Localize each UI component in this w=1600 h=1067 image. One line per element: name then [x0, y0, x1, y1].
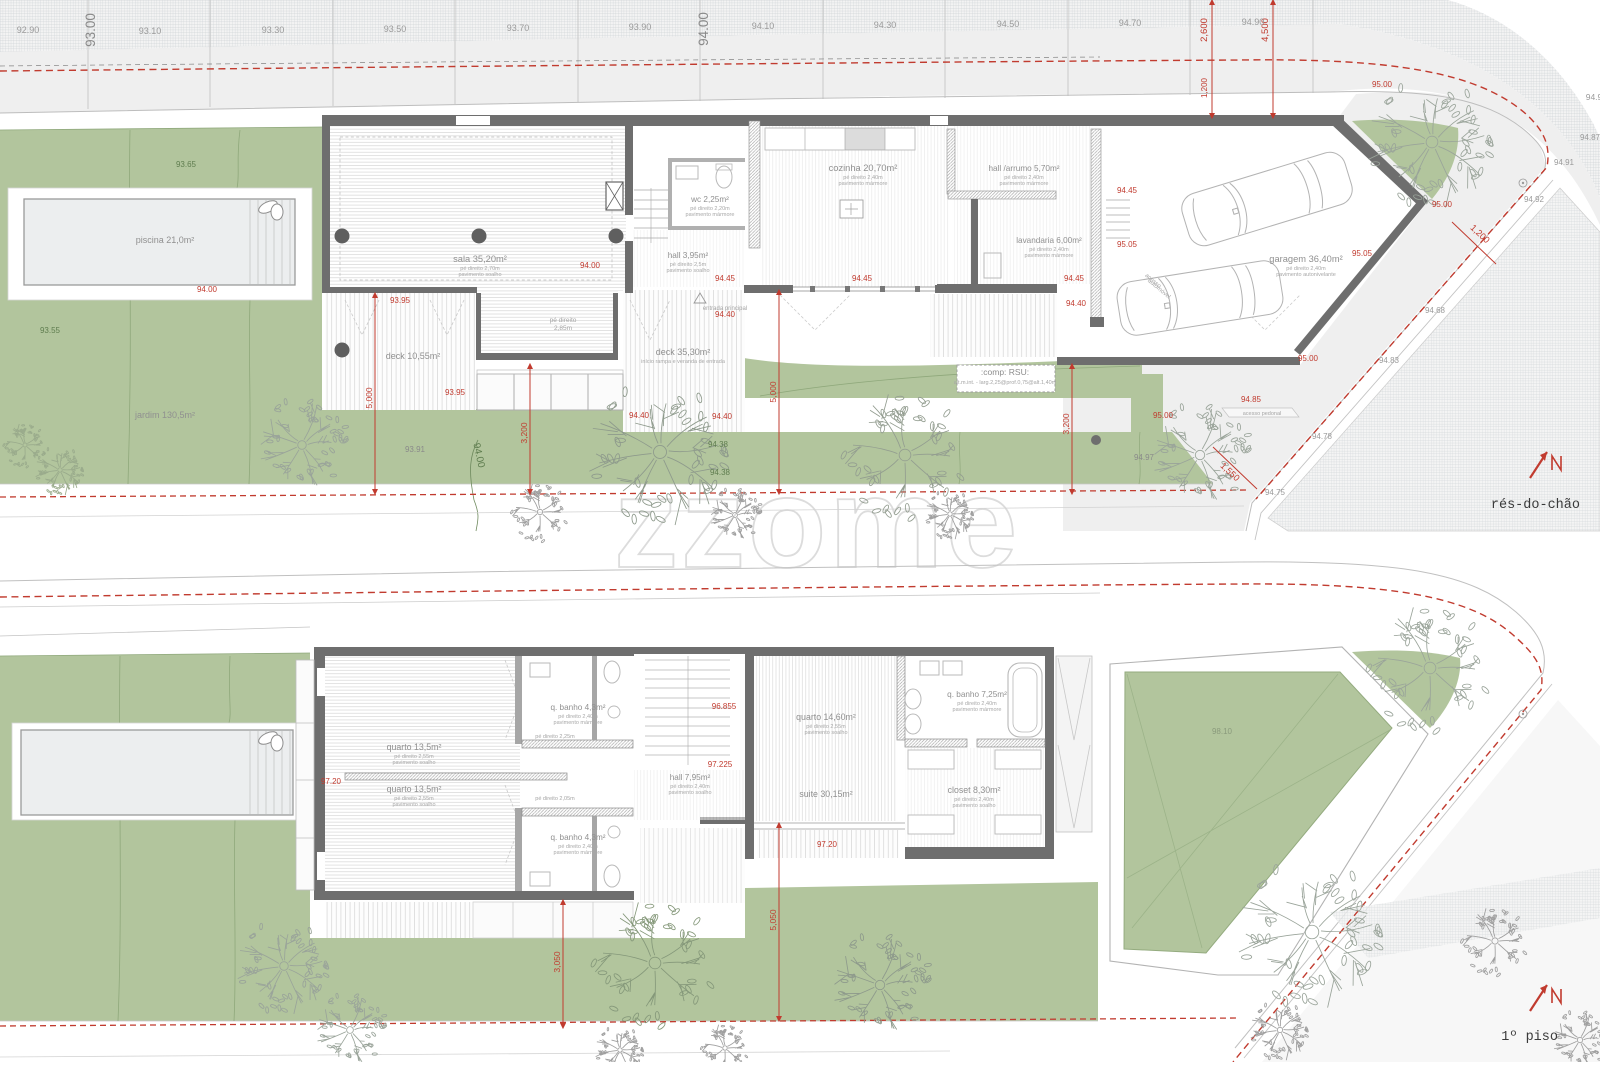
svg-text:pavimento mármore: pavimento mármore [554, 720, 603, 726]
svg-text:pavimento soalho: pavimento soalho [458, 272, 501, 278]
svg-text:pé direito 2,05m: pé direito 2,05m [535, 796, 575, 802]
svg-text:pé direito: pé direito [550, 317, 577, 324]
svg-text:93.90: 93.90 [629, 22, 652, 32]
svg-text:alt.m.int. - larg.2,25@prof.0,: alt.m.int. - larg.2,25@prof.0,75@alt.1,4… [954, 380, 1057, 386]
svg-text:94.00: 94.00 [197, 285, 218, 294]
svg-text:3,050: 3,050 [552, 951, 562, 973]
svg-text:94.91: 94.91 [1554, 158, 1575, 167]
svg-text:pavimento soalho: pavimento soalho [804, 730, 847, 736]
svg-text:93.70: 93.70 [507, 23, 530, 33]
svg-text:3,200: 3,200 [1061, 413, 1071, 435]
svg-text:93.50: 93.50 [384, 24, 407, 34]
svg-text:93.95: 93.95 [445, 388, 466, 397]
svg-text:5,000: 5,000 [364, 387, 374, 409]
svg-text:94.30: 94.30 [874, 20, 897, 30]
svg-text:94.97: 94.97 [1134, 453, 1155, 462]
svg-text:94.70: 94.70 [1119, 18, 1142, 28]
svg-text:95.05: 95.05 [1117, 240, 1138, 249]
svg-text:rés-do-chão: rés-do-chão [1491, 498, 1580, 513]
svg-text:93.00: 93.00 [83, 13, 98, 47]
svg-text:pavimento soalho: pavimento soalho [392, 802, 435, 808]
svg-text:pavimento soalho: pavimento soalho [666, 268, 709, 274]
svg-text:início rampa e veranda de entr: início rampa e veranda de entrada [641, 359, 726, 365]
svg-text:pé direito 2,25m: pé direito 2,25m [535, 734, 575, 740]
svg-text:94.45: 94.45 [1064, 274, 1085, 283]
svg-text:acesso pedonal: acesso pedonal [1243, 411, 1282, 417]
svg-text:94.10: 94.10 [752, 21, 775, 31]
svg-text:jardim 130,5m²: jardim 130,5m² [134, 410, 195, 420]
svg-text:pavimento soalho: pavimento soalho [392, 760, 435, 766]
svg-text:closet 8,30m²: closet 8,30m² [948, 785, 1001, 795]
svg-text:suite 30,15m²: suite 30,15m² [799, 789, 852, 799]
svg-text:cozinha 20,70m²: cozinha 20,70m² [829, 163, 898, 173]
svg-text:pavimento mármore: pavimento mármore [686, 212, 735, 218]
svg-text:pavimento autonivelante: pavimento autonivelante [1276, 272, 1336, 278]
svg-text:sala 35,20m²: sala 35,20m² [453, 254, 507, 264]
svg-text:pavimento soalho: pavimento soalho [952, 803, 995, 809]
svg-text:deck 10,55m²: deck 10,55m² [386, 351, 441, 361]
svg-text:pavimento mármore: pavimento mármore [1025, 253, 1074, 259]
svg-text:93.10: 93.10 [139, 26, 162, 36]
svg-text:95.05: 95.05 [1352, 249, 1373, 258]
svg-text:93.30: 93.30 [262, 25, 285, 35]
svg-text:95.00: 95.00 [1432, 200, 1453, 209]
svg-text:entrada principal: entrada principal [703, 306, 747, 312]
svg-text:94.00: 94.00 [580, 261, 601, 270]
svg-text:94.45: 94.45 [1117, 186, 1138, 195]
svg-text:93.55: 93.55 [40, 326, 61, 335]
svg-text:pavimento mármore: pavimento mármore [953, 707, 1002, 713]
svg-text:94.68: 94.68 [1425, 306, 1446, 315]
svg-text:94.00: 94.00 [696, 12, 711, 46]
svg-text:q. banho 4,3m²: q. banho 4,3m² [550, 833, 605, 842]
svg-text:94.92: 94.92 [1524, 195, 1545, 204]
svg-text:1,200: 1,200 [1200, 77, 1209, 98]
svg-text:93.65: 93.65 [176, 160, 197, 169]
svg-text:94.90: 94.90 [1242, 17, 1265, 27]
svg-text:piscina 21,0m²: piscina 21,0m² [136, 235, 195, 245]
svg-text:94.45: 94.45 [715, 274, 736, 283]
svg-text:deck 35,30m²: deck 35,30m² [656, 347, 711, 357]
svg-text:pavimento mármore: pavimento mármore [839, 181, 888, 187]
svg-text:pavimento mármore: pavimento mármore [554, 850, 603, 856]
svg-text:hall 7,95m²: hall 7,95m² [670, 773, 711, 782]
svg-text:97.225: 97.225 [708, 760, 733, 769]
svg-text:5,000: 5,000 [768, 381, 778, 403]
svg-text:wc 2,25m²: wc 2,25m² [690, 195, 729, 204]
svg-text:94.50: 94.50 [997, 19, 1020, 29]
svg-text::comp: RSU:: :comp: RSU: [981, 367, 1029, 377]
svg-text:97.20: 97.20 [817, 840, 838, 849]
svg-text:92.90: 92.90 [17, 25, 40, 35]
svg-text:94.40: 94.40 [712, 412, 733, 421]
svg-text:94.85: 94.85 [1241, 395, 1262, 404]
svg-text:94.87: 94.87 [1580, 133, 1600, 142]
svg-text:q. banho 4,3m²: q. banho 4,3m² [550, 703, 605, 712]
svg-text:94.38: 94.38 [710, 468, 731, 477]
svg-text:quarto 13,5m²: quarto 13,5m² [387, 742, 442, 752]
svg-text:93.95: 93.95 [390, 296, 411, 305]
svg-text:quarto 14,60m²: quarto 14,60m² [796, 712, 856, 722]
svg-text:94.78: 94.78 [1312, 432, 1333, 441]
svg-text:95.00: 95.00 [1298, 354, 1319, 363]
svg-text:5,050: 5,050 [768, 909, 778, 931]
svg-text:pavimento soalho: pavimento soalho [668, 790, 711, 796]
svg-text:94.40: 94.40 [629, 411, 650, 420]
svg-text:garagem 36,40m²: garagem 36,40m² [1269, 254, 1342, 264]
svg-text:pavimento mármore: pavimento mármore [1000, 181, 1049, 187]
svg-text:lavandaria 6,00m²: lavandaria 6,00m² [1016, 236, 1082, 245]
svg-text:94.83: 94.83 [1379, 356, 1400, 365]
svg-text:94.45: 94.45 [852, 274, 873, 283]
svg-text:q. banho 7,25m²: q. banho 7,25m² [947, 690, 1007, 699]
svg-text:95.00: 95.00 [1372, 80, 1393, 89]
svg-text:hall /arrumo 5,70m²: hall /arrumo 5,70m² [989, 164, 1060, 173]
svg-text:2,600: 2,600 [1199, 18, 1210, 42]
svg-text:3,200: 3,200 [519, 422, 529, 444]
svg-text:96.855: 96.855 [712, 702, 737, 711]
svg-text:97.20: 97.20 [321, 777, 342, 786]
svg-text:93.91: 93.91 [405, 445, 426, 454]
svg-text:1º piso: 1º piso [1501, 1030, 1558, 1045]
svg-text:94.9: 94.9 [1586, 92, 1600, 102]
svg-text:94.40: 94.40 [1066, 299, 1087, 308]
svg-text:95.00: 95.00 [1153, 411, 1174, 420]
svg-text:hall 3,95m²: hall 3,95m² [668, 251, 709, 260]
svg-text:94.38: 94.38 [708, 440, 729, 449]
svg-text:quarto 13,5m²: quarto 13,5m² [387, 784, 442, 794]
svg-text:2,85m: 2,85m [554, 325, 572, 332]
svg-text:94.75: 94.75 [1265, 488, 1286, 497]
svg-text:98.10: 98.10 [1212, 727, 1233, 736]
